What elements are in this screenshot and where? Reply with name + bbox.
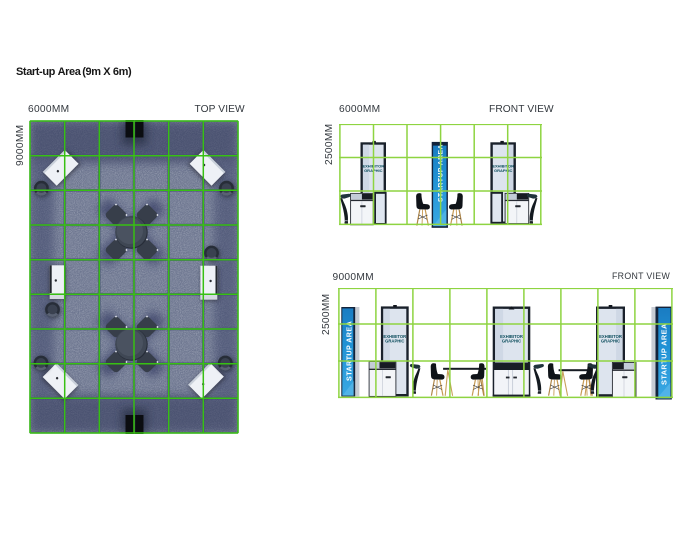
- svg-text:GRAPHIC: GRAPHIC: [502, 338, 521, 343]
- svg-text:STARTUP AREA: STARTUP AREA: [659, 323, 668, 385]
- svg-text:GRAPHIC: GRAPHIC: [385, 338, 404, 343]
- svg-text:STARTUP AREA: STARTUP AREA: [344, 321, 353, 381]
- svg-text:GRAPHIC: GRAPHIC: [601, 338, 620, 343]
- svg-text:GRAPHIC: GRAPHIC: [493, 168, 512, 173]
